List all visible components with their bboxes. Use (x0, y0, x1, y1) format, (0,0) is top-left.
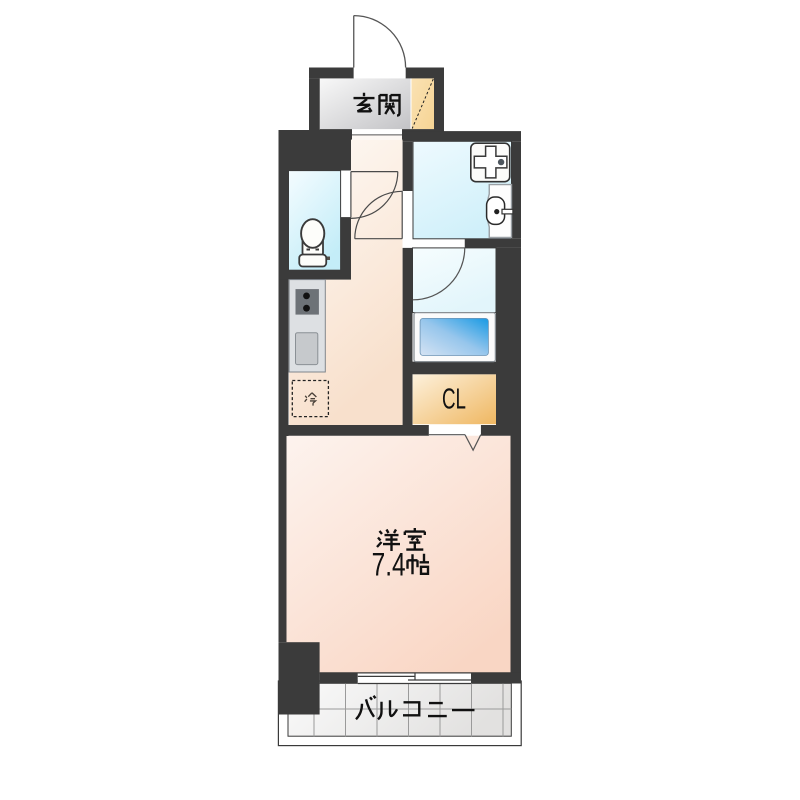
svg-text:CL: CL (442, 384, 466, 416)
svg-text:7.4: 7.4 (372, 547, 406, 583)
